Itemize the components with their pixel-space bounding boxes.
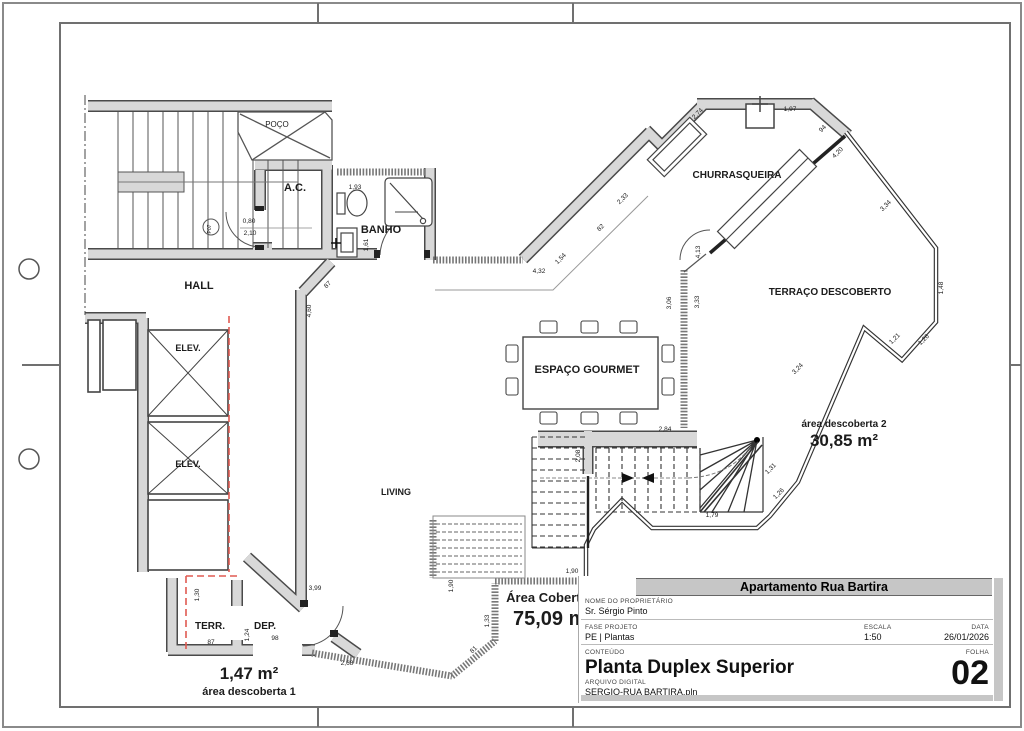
door-jamb	[300, 600, 308, 607]
phase-label: FASE PROJETO	[585, 624, 638, 631]
punch-hole	[19, 259, 39, 279]
dimension-label: 2,84	[659, 426, 672, 433]
dimension-label: 4,13	[695, 245, 702, 258]
room-label: CHURRASQUEIRA	[693, 170, 782, 181]
content-label: CONTEÚDO	[585, 649, 625, 656]
sink-bowl	[341, 233, 353, 252]
dimension-label: 98	[271, 635, 279, 642]
title-block: Apartamento Rua Bartira NOME DO PROPRIET…	[578, 576, 1005, 703]
room-label: ELEV.	[175, 459, 200, 469]
divider	[581, 644, 993, 645]
area-label: 30,85 m²	[810, 431, 878, 450]
scale-value: 1:50	[864, 632, 882, 642]
dimension-label: 1,30	[194, 588, 201, 601]
dimension-label: 1,79	[706, 512, 719, 519]
dimension-label: 3,33	[694, 295, 701, 308]
dimension-label: 3,99	[309, 585, 322, 592]
door-jamb	[330, 630, 338, 637]
shower-drain	[420, 218, 425, 223]
room-label: POÇO	[265, 120, 289, 129]
file-label: ARQUIVO DIGITAL	[585, 679, 646, 686]
duct	[103, 320, 136, 390]
projection-dashes	[436, 524, 522, 572]
toilet-icon	[347, 190, 367, 216]
dimension-label: 81	[469, 645, 479, 655]
duplex-stair	[532, 437, 763, 548]
sheet-content-title: Planta Duplex Superior	[585, 657, 794, 679]
dimension-label: 1,97	[784, 106, 797, 113]
dimension-label: 1,90	[448, 579, 455, 592]
dimension-label: 94	[818, 124, 828, 134]
dimension-label: 1,48	[938, 281, 945, 294]
dimension-label: 82	[596, 223, 606, 233]
dimension-label: 1,93	[349, 184, 362, 191]
room-label: LIVING	[381, 487, 411, 497]
titleblock-right-bar	[994, 578, 1003, 701]
punch-hole	[19, 449, 39, 469]
machine-room	[148, 500, 228, 570]
room-label: DEP.	[254, 621, 276, 632]
dimension-label: 1,90	[566, 568, 579, 575]
room-label: A.C.	[284, 182, 306, 194]
drawing-sheet: POÇOA.C.BANHOHALLELEV.ELEV.LIVINGESPAÇO …	[0, 0, 1024, 731]
door-jamb	[374, 250, 380, 258]
dimension-label: 2,08	[575, 449, 582, 462]
date-value: 26/01/2026	[944, 632, 989, 642]
area-label: área descoberta 2	[801, 419, 886, 430]
room-label: BANHO	[361, 224, 402, 236]
dimension-label: 1,54	[554, 252, 568, 266]
dimension-label: 3,24	[791, 362, 805, 376]
room-label: TERR.	[195, 621, 225, 632]
date-label: DATA	[971, 624, 989, 631]
owner-label: NOME DO PROPRIETÁRIO	[585, 598, 673, 605]
dimension-label: 1,33	[484, 614, 491, 627]
area-label: Área Coberta	[506, 590, 588, 605]
door-jamb	[255, 245, 264, 250]
dimension-label: 87	[323, 280, 333, 290]
elevator-shafts	[88, 320, 228, 570]
dimension-label: 1,61	[363, 238, 370, 251]
phase-value: PE | Plantas	[585, 632, 634, 642]
duct	[88, 320, 100, 392]
room-label: ELEV.	[175, 343, 200, 353]
project-title-bar: Apartamento Rua Bartira	[636, 578, 992, 596]
dimension-label: 4,60	[306, 304, 313, 317]
dimension-label: 2,68	[341, 660, 354, 667]
door-tag-label: P07	[207, 224, 213, 233]
titleblock-bottom-bar	[581, 695, 993, 701]
toilet-tank	[337, 193, 345, 214]
winter-garden-projection	[433, 516, 525, 578]
dimension-label: 1,21	[888, 332, 902, 346]
dimension-label: 1,24	[244, 628, 251, 641]
owner-value: Sr. Sérgio Pinto	[585, 606, 648, 616]
dimension-label: 1,26	[917, 333, 931, 347]
room-label: ESPAÇO GOURMET	[535, 364, 640, 376]
room-label: HALL	[184, 280, 214, 292]
dimension-label: 0,80	[243, 218, 256, 225]
dimension-label: 3,06	[666, 296, 673, 309]
divider	[581, 619, 993, 620]
walkline-arrow	[622, 473, 634, 483]
scale-label: ESCALA	[864, 624, 891, 631]
area-label: área descoberta 1	[202, 686, 296, 698]
dimension-label: 2,33	[616, 192, 630, 206]
dimension-label: 4,32	[533, 268, 546, 275]
dimension-label: 1,31	[764, 462, 778, 476]
dimension-label: 2,10	[244, 230, 257, 237]
door-jamb	[424, 250, 430, 258]
sheet-number: 02	[951, 654, 989, 693]
door-jamb	[255, 206, 264, 211]
room-label: TERRAÇO DESCOBERTO	[769, 287, 892, 298]
area-label: 1,47 m²	[220, 664, 279, 683]
dimension-label: 3,34	[879, 199, 893, 213]
dimension-label: 87	[207, 639, 215, 646]
